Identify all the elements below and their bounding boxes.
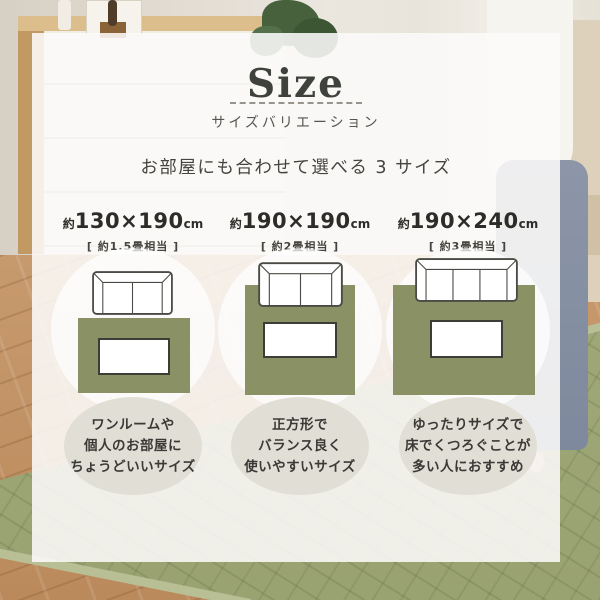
sofa-top-view-icon [258, 262, 343, 307]
table-diagram [430, 320, 503, 358]
approx-prefix: 約 [63, 217, 75, 231]
size-column-190x190: 約190×190cm [ 約2畳相当 ] 正方形で バランス良く 使いやすいサイ… [212, 33, 388, 562]
product-size-infographic: Size サイズバリエーション お部屋にも合わせて選べる 3 サイズ 約130×… [0, 0, 600, 600]
size-label: 約190×240cm [380, 209, 556, 233]
description-line: ゆったりサイズで [412, 415, 524, 436]
sofa-top-view-icon [92, 271, 173, 315]
size-label: 約190×190cm [212, 209, 388, 233]
size-column-130x190: 約130×190cm [ 約1.5畳相当 ] ワンルームや 個人のお部屋に ちょ… [45, 33, 221, 562]
size-label: 約130×190cm [45, 209, 221, 233]
unit-text: cm [519, 217, 539, 231]
description-line: ちょうどいいサイズ [70, 457, 196, 478]
sofa-top-view-icon [415, 258, 518, 302]
dimensions-text: 130×190 [75, 209, 184, 233]
candle [58, 0, 71, 30]
description-bubble: 正方形で バランス良く 使いやすいサイズ [231, 397, 369, 495]
description-line: 多い人におすすめ [412, 457, 524, 478]
unit-text: cm [351, 217, 371, 231]
size-column-190x240: 約190×240cm [ 約3畳相当 ] ゆったりサイズで 床でくつろぐことが … [380, 33, 556, 562]
description-line: ワンルームや [91, 415, 175, 436]
dimensions-text: 190×240 [410, 209, 519, 233]
description-line: バランス良く [258, 436, 342, 457]
approx-prefix: 約 [230, 217, 242, 231]
approx-prefix: 約 [398, 217, 410, 231]
description-bubble: ゆったりサイズで 床でくつろぐことが 多い人におすすめ [399, 397, 537, 495]
dimensions-text: 190×190 [242, 209, 351, 233]
table-diagram [263, 322, 337, 358]
unit-text: cm [184, 217, 204, 231]
size-info-card: Size サイズバリエーション お部屋にも合わせて選べる 3 サイズ 約130×… [32, 33, 560, 562]
description-line: 正方形で [272, 415, 328, 436]
description-line: 個人のお部屋に [84, 436, 182, 457]
table-diagram [98, 338, 170, 375]
description-bubble: ワンルームや 個人のお部屋に ちょうどいいサイズ [64, 397, 202, 495]
description-line: 使いやすいサイズ [244, 457, 356, 478]
sculpture-figure [108, 0, 117, 26]
description-line: 床でくつろぐことが [405, 436, 531, 457]
